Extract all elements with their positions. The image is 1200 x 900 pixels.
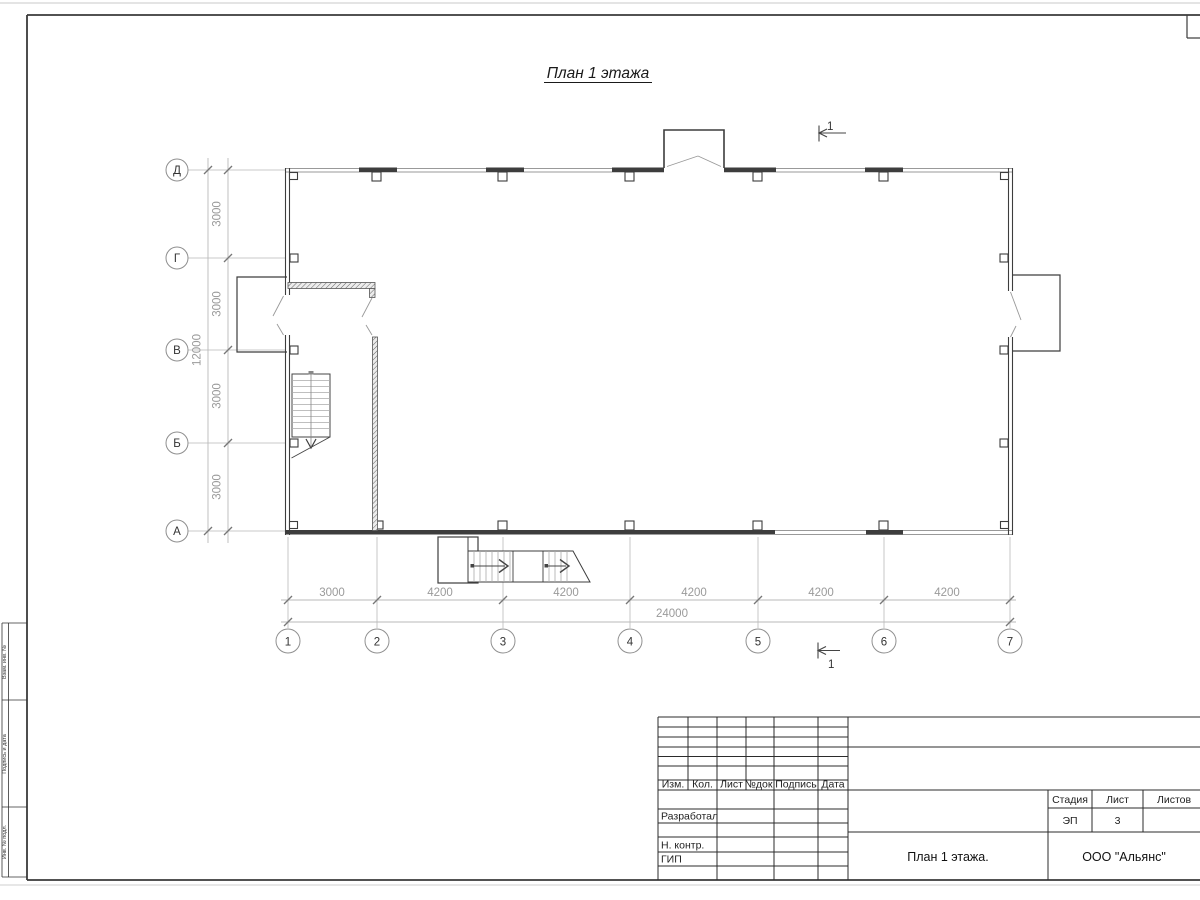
tb-header-izm: Изм. (662, 779, 685, 791)
title-block: Изм. Кол. Лист №док. Подпись Дата Разраб… (658, 717, 1200, 880)
axis-label: А (173, 526, 181, 538)
section-mark-bottom: 1 (818, 643, 840, 672)
section-mark-top: 1 (819, 121, 846, 142)
tb-header-podpis: Подпись (775, 779, 817, 791)
tb-drawing-name: План 1 этажа. (907, 850, 988, 864)
margin-cell-label: Взам. инв. № (2, 645, 8, 679)
left-vestibule (237, 277, 287, 352)
dim-total-label: 12000 (192, 334, 204, 366)
dim-label: 4200 (681, 587, 707, 599)
column-axis-markers: 1 2 3 4 5 6 7 (276, 629, 1022, 653)
dim-label: 3000 (212, 291, 224, 317)
floor-plan-drawing: Взам. инв. № Подпись и дата Инв. № подл.… (0, 0, 1200, 900)
axis-label: 6 (881, 637, 887, 649)
dim-total-label: 24000 (656, 608, 688, 620)
dim-label: 3000 (212, 383, 224, 409)
row-axis-markers: Д Г В Б А (166, 159, 188, 542)
section-label: 1 (827, 121, 833, 133)
tb-sheets-label: Листов (1157, 794, 1192, 806)
right-vestibule (1011, 275, 1061, 351)
tb-stage-value: ЭП (1062, 815, 1077, 827)
vertical-dimensions: 3000 3000 3000 3000 12000 (192, 158, 233, 543)
dim-label: 3000 (319, 587, 345, 599)
plan-title: План 1 этажа (544, 65, 652, 83)
dim-label: 4200 (808, 587, 834, 599)
left-margin-strip: Взам. инв. № Подпись и дата Инв. № подл. (2, 623, 27, 877)
tb-sheet-value: 3 (1115, 815, 1121, 827)
exterior-walls (285, 168, 1013, 536)
tb-header-data: Дата (821, 779, 844, 791)
tb-sheet-label: Лист (1106, 794, 1129, 806)
axis-label: 1 (285, 637, 291, 649)
margin-cell-label: Подпись и дата (2, 733, 8, 773)
margin-cell-label: Инв. № подл. (2, 824, 8, 859)
drawing-frame (27, 15, 1200, 880)
dim-label: 3000 (212, 474, 224, 500)
dim-label: 4200 (934, 587, 960, 599)
dim-label: 3000 (212, 201, 224, 227)
tb-company-name: ООО "Альянс" (1082, 850, 1166, 864)
exterior-porch-steps (438, 537, 590, 583)
drawing-sheet: Взам. инв. № Подпись и дата Инв. № подл.… (0, 0, 1200, 900)
axis-label: Г (174, 253, 181, 265)
horizontal-dimensions: 3000 4200 4200 4200 4200 4200 24000 (281, 587, 1016, 626)
axis-label: 7 (1007, 637, 1013, 649)
axis-label: 4 (627, 637, 634, 649)
curtain-walls (285, 169, 1013, 535)
axis-label: Д (173, 165, 181, 177)
tb-stage-label: Стадия (1052, 794, 1088, 806)
top-entrance-vestibule (664, 130, 724, 168)
tb-header-kol: Кол. (692, 779, 713, 791)
tb-role-ncontrol: Н. контр. (661, 840, 704, 852)
column-stubs (290, 172, 1009, 530)
dim-label: 4200 (427, 587, 453, 599)
tb-header-list: Лист (720, 779, 743, 791)
tb-header-ndok: №док. (745, 779, 776, 791)
section-label: 1 (828, 659, 834, 671)
axis-label: 5 (755, 637, 761, 649)
axis-label: Б (173, 438, 181, 450)
stair-direction-start-mark (309, 371, 314, 375)
tb-role-developer: Разработал (661, 811, 718, 823)
axis-label: В (173, 345, 181, 357)
axis-label: 2 (374, 637, 380, 649)
tb-role-gip: ГИП (661, 854, 682, 866)
dim-label: 4200 (553, 587, 579, 599)
axis-label: 3 (500, 637, 506, 649)
plan-title-text: План 1 этажа (547, 65, 650, 82)
